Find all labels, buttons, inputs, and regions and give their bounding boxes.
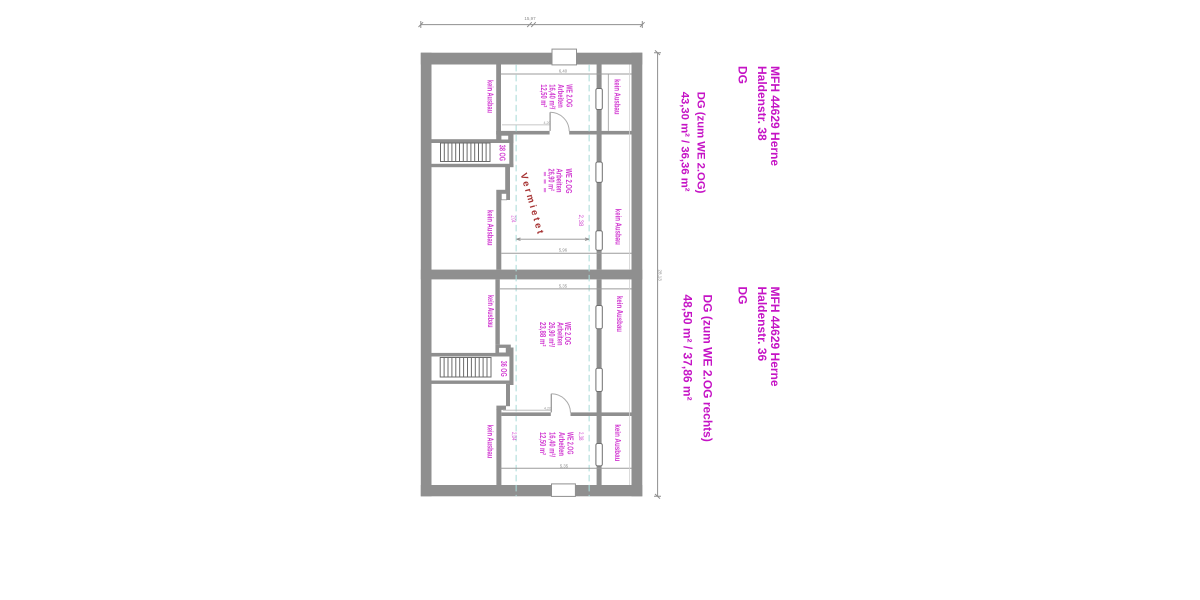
svg-text:5,35: 5,35 (559, 284, 568, 289)
svg-text:DG (zum WE 2.OG): DG (zum WE 2.OG) (695, 92, 707, 194)
svg-text:12,50 m²: 12,50 m² (539, 84, 549, 107)
svg-text:kein Ausbau: kein Ausbau (486, 80, 496, 113)
svg-text:kein Ausbau: kein Ausbau (614, 209, 624, 245)
svg-text:MFH 44629 Herne: MFH 44629 Herne (768, 287, 782, 387)
svg-text:5,35: 5,35 (560, 463, 569, 468)
svg-text:36 OG: 36 OG (499, 361, 509, 377)
svg-text:28,13: 28,13 (658, 270, 663, 282)
svg-text:DG: DG (736, 287, 750, 305)
svg-text:kein Ausbau: kein Ausbau (486, 425, 496, 459)
svg-text:12,50 m²: 12,50 m² (538, 432, 548, 455)
svg-text:4,20: 4,20 (544, 121, 551, 125)
svg-text:kein Ausbau: kein Ausbau (613, 79, 623, 114)
svg-text:6,40: 6,40 (559, 69, 568, 74)
svg-text:kein Ausbau: kein Ausbau (613, 424, 623, 461)
svg-text:2,04: 2,04 (510, 216, 516, 223)
svg-text:DG: DG (736, 66, 750, 84)
svg-text:23,88 m²: 23,88 m² (538, 322, 548, 347)
svg-text:Arbeiten: Arbeiten (557, 432, 567, 456)
svg-text:15,97: 15,97 (524, 16, 536, 21)
svg-text:43,30 m² / 36,36 m²: 43,30 m² / 36,36 m² (678, 92, 690, 192)
svg-text:kein Ausbau: kein Ausbau (615, 296, 625, 332)
svg-text:48,50 m² / 37,86 m²: 48,50 m² / 37,86 m² (681, 295, 695, 401)
svg-text:kein Ausbau: kein Ausbau (486, 295, 496, 328)
svg-text:2,04: 2,04 (510, 432, 516, 441)
svg-text:2,38: 2,38 (577, 432, 583, 441)
svg-text:kein Ausbau: kein Ausbau (486, 210, 496, 245)
svg-text:Haldenstr. 36: Haldenstr. 36 (755, 287, 769, 362)
svg-text:26,90 m²: 26,90 m² (546, 169, 556, 192)
svg-text:Haldenstr. 38: Haldenstr. 38 (755, 66, 769, 141)
svg-text:2,38: 2,38 (577, 215, 583, 228)
svg-text:5,96: 5,96 (559, 248, 568, 253)
svg-text:MFH 44629 Herne: MFH 44629 Herne (768, 66, 782, 166)
svg-text:DG (zum WE 2.OG rechts): DG (zum WE 2.OG rechts) (701, 295, 715, 442)
svg-text:38 OG: 38 OG (498, 145, 508, 161)
svg-text:4,20: 4,20 (544, 406, 551, 410)
